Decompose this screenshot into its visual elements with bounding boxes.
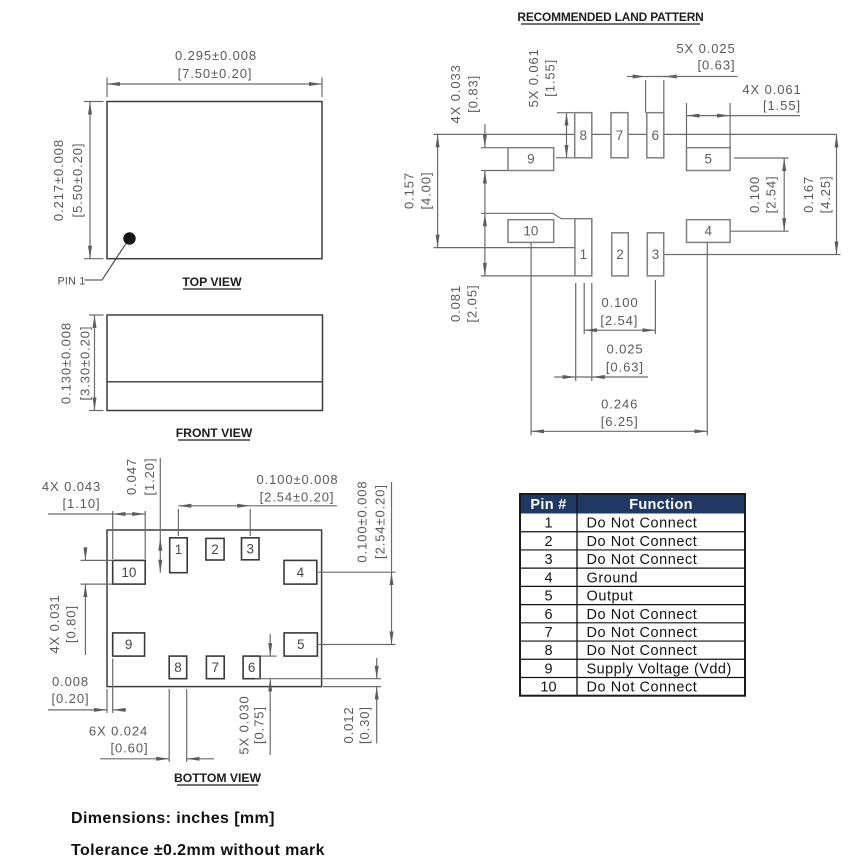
svg-text:[0.30]: [0.30] — [357, 706, 372, 744]
svg-text:FRONT VIEW: FRONT VIEW — [176, 426, 253, 440]
svg-text:0.008: 0.008 — [52, 674, 89, 689]
svg-text:Dimensions: inches [mm]: Dimensions: inches [mm] — [71, 810, 275, 827]
svg-text:2: 2 — [616, 247, 624, 262]
svg-text:[7.50±0.20]: [7.50±0.20] — [178, 66, 253, 81]
svg-text:[2.54]: [2.54] — [600, 313, 638, 328]
svg-text:6: 6 — [652, 128, 660, 143]
svg-text:0.012: 0.012 — [341, 706, 356, 743]
svg-text:0.100: 0.100 — [601, 295, 638, 310]
svg-text:PIN 1: PIN 1 — [58, 276, 86, 288]
svg-text:Do Not Connect: Do Not Connect — [587, 607, 698, 623]
svg-text:5: 5 — [705, 152, 713, 167]
svg-text:Do Not Connect: Do Not Connect — [587, 643, 698, 659]
svg-text:4X 0.033: 4X 0.033 — [448, 64, 463, 123]
svg-text:[4.25]: [4.25] — [818, 175, 833, 213]
svg-text:Do Not Connect: Do Not Connect — [587, 534, 698, 550]
svg-text:3: 3 — [652, 247, 660, 262]
svg-text:0.246: 0.246 — [601, 397, 638, 412]
svg-text:0.100: 0.100 — [747, 176, 762, 213]
svg-text:0.100±0.008: 0.100±0.008 — [256, 472, 338, 487]
svg-text:Do Not Connect: Do Not Connect — [587, 552, 698, 568]
svg-text:5X 0.030: 5X 0.030 — [236, 695, 251, 754]
svg-text:RECOMMENDED LAND PATTERN: RECOMMENDED LAND PATTERN — [517, 10, 703, 24]
svg-text:6X 0.024: 6X 0.024 — [89, 724, 148, 739]
svg-text:0.217±0.008: 0.217±0.008 — [51, 139, 66, 221]
svg-text:8: 8 — [579, 128, 587, 143]
svg-text:Output: Output — [587, 589, 634, 605]
svg-text:[0.75]: [0.75] — [252, 706, 267, 744]
svg-text:Tolerance ±0.2mm without mark: Tolerance ±0.2mm without mark — [71, 842, 325, 859]
svg-text:[0.63]: [0.63] — [698, 58, 736, 73]
svg-text:1: 1 — [580, 247, 588, 262]
svg-text:[5.50±0.20]: [5.50±0.20] — [70, 143, 85, 218]
svg-text:[1.55]: [1.55] — [763, 98, 801, 113]
svg-text:2: 2 — [211, 542, 219, 557]
svg-text:[1.55]: [1.55] — [543, 59, 558, 97]
svg-text:1: 1 — [544, 516, 552, 532]
svg-text:Pin #: Pin # — [530, 497, 566, 513]
svg-text:4: 4 — [705, 224, 713, 239]
svg-text:9: 9 — [527, 152, 535, 167]
svg-text:3: 3 — [246, 541, 254, 556]
svg-text:Do Not Connect: Do Not Connect — [587, 680, 698, 696]
svg-text:0.167: 0.167 — [801, 176, 816, 213]
svg-text:[2.05]: [2.05] — [465, 285, 480, 323]
svg-text:[6.25]: [6.25] — [601, 414, 639, 429]
svg-text:[3.30±0.20]: [3.30±0.20] — [78, 326, 93, 401]
svg-text:[0.80]: [0.80] — [64, 605, 79, 643]
svg-text:0.025: 0.025 — [606, 342, 643, 357]
svg-text:0.047: 0.047 — [124, 458, 139, 495]
svg-text:8: 8 — [174, 660, 182, 675]
svg-text:2: 2 — [544, 534, 552, 550]
svg-text:9: 9 — [544, 661, 552, 677]
svg-text:10: 10 — [121, 565, 136, 580]
svg-text:Do Not Connect: Do Not Connect — [587, 625, 698, 641]
svg-text:[0.63]: [0.63] — [606, 360, 644, 375]
svg-text:7: 7 — [544, 625, 552, 641]
svg-text:4X 0.061: 4X 0.061 — [742, 82, 801, 97]
svg-text:7: 7 — [616, 128, 624, 143]
svg-text:0.100±0.008: 0.100±0.008 — [355, 480, 370, 562]
svg-text:3: 3 — [544, 552, 552, 568]
svg-text:Ground: Ground — [587, 570, 639, 586]
svg-text:7: 7 — [212, 660, 220, 675]
svg-text:[2.54±0.20]: [2.54±0.20] — [373, 484, 388, 559]
svg-text:1: 1 — [175, 542, 183, 557]
svg-text:6: 6 — [544, 607, 552, 623]
svg-text:Do Not Connect: Do Not Connect — [587, 516, 698, 532]
svg-text:4X 0.031: 4X 0.031 — [47, 594, 62, 653]
svg-text:10: 10 — [540, 680, 556, 696]
svg-text:8: 8 — [544, 643, 552, 659]
svg-text:Supply Voltage (Vdd): Supply Voltage (Vdd) — [587, 661, 732, 677]
svg-text:0.130±0.008: 0.130±0.008 — [59, 322, 74, 404]
svg-text:5X 0.025: 5X 0.025 — [676, 41, 735, 56]
svg-text:5: 5 — [297, 637, 305, 652]
svg-text:5: 5 — [544, 589, 552, 605]
svg-text:BOTTOM VIEW: BOTTOM VIEW — [174, 771, 262, 785]
svg-text:0.295±0.008: 0.295±0.008 — [175, 48, 257, 63]
svg-text:[0.60]: [0.60] — [111, 741, 149, 756]
svg-text:9: 9 — [125, 637, 133, 652]
svg-text:[4.00]: [4.00] — [419, 172, 434, 210]
svg-text:[0.83]: [0.83] — [465, 75, 480, 113]
svg-text:0.157: 0.157 — [401, 172, 416, 209]
svg-text:4: 4 — [544, 570, 552, 586]
svg-text:[1.10]: [1.10] — [63, 496, 101, 511]
svg-text:6: 6 — [248, 660, 256, 675]
svg-text:5X 0.061: 5X 0.061 — [526, 48, 541, 107]
svg-text:4: 4 — [297, 565, 305, 580]
svg-text:Function: Function — [629, 497, 693, 513]
svg-text:[2.54±0.20]: [2.54±0.20] — [260, 490, 335, 505]
svg-text:4X 0.043: 4X 0.043 — [42, 479, 101, 494]
svg-text:[0.20]: [0.20] — [52, 691, 90, 706]
svg-text:TOP VIEW: TOP VIEW — [182, 275, 242, 289]
svg-text:10: 10 — [523, 224, 538, 239]
svg-text:[2.54]: [2.54] — [764, 175, 779, 213]
svg-text:0.081: 0.081 — [448, 285, 463, 322]
svg-text:[1.20]: [1.20] — [142, 458, 157, 496]
